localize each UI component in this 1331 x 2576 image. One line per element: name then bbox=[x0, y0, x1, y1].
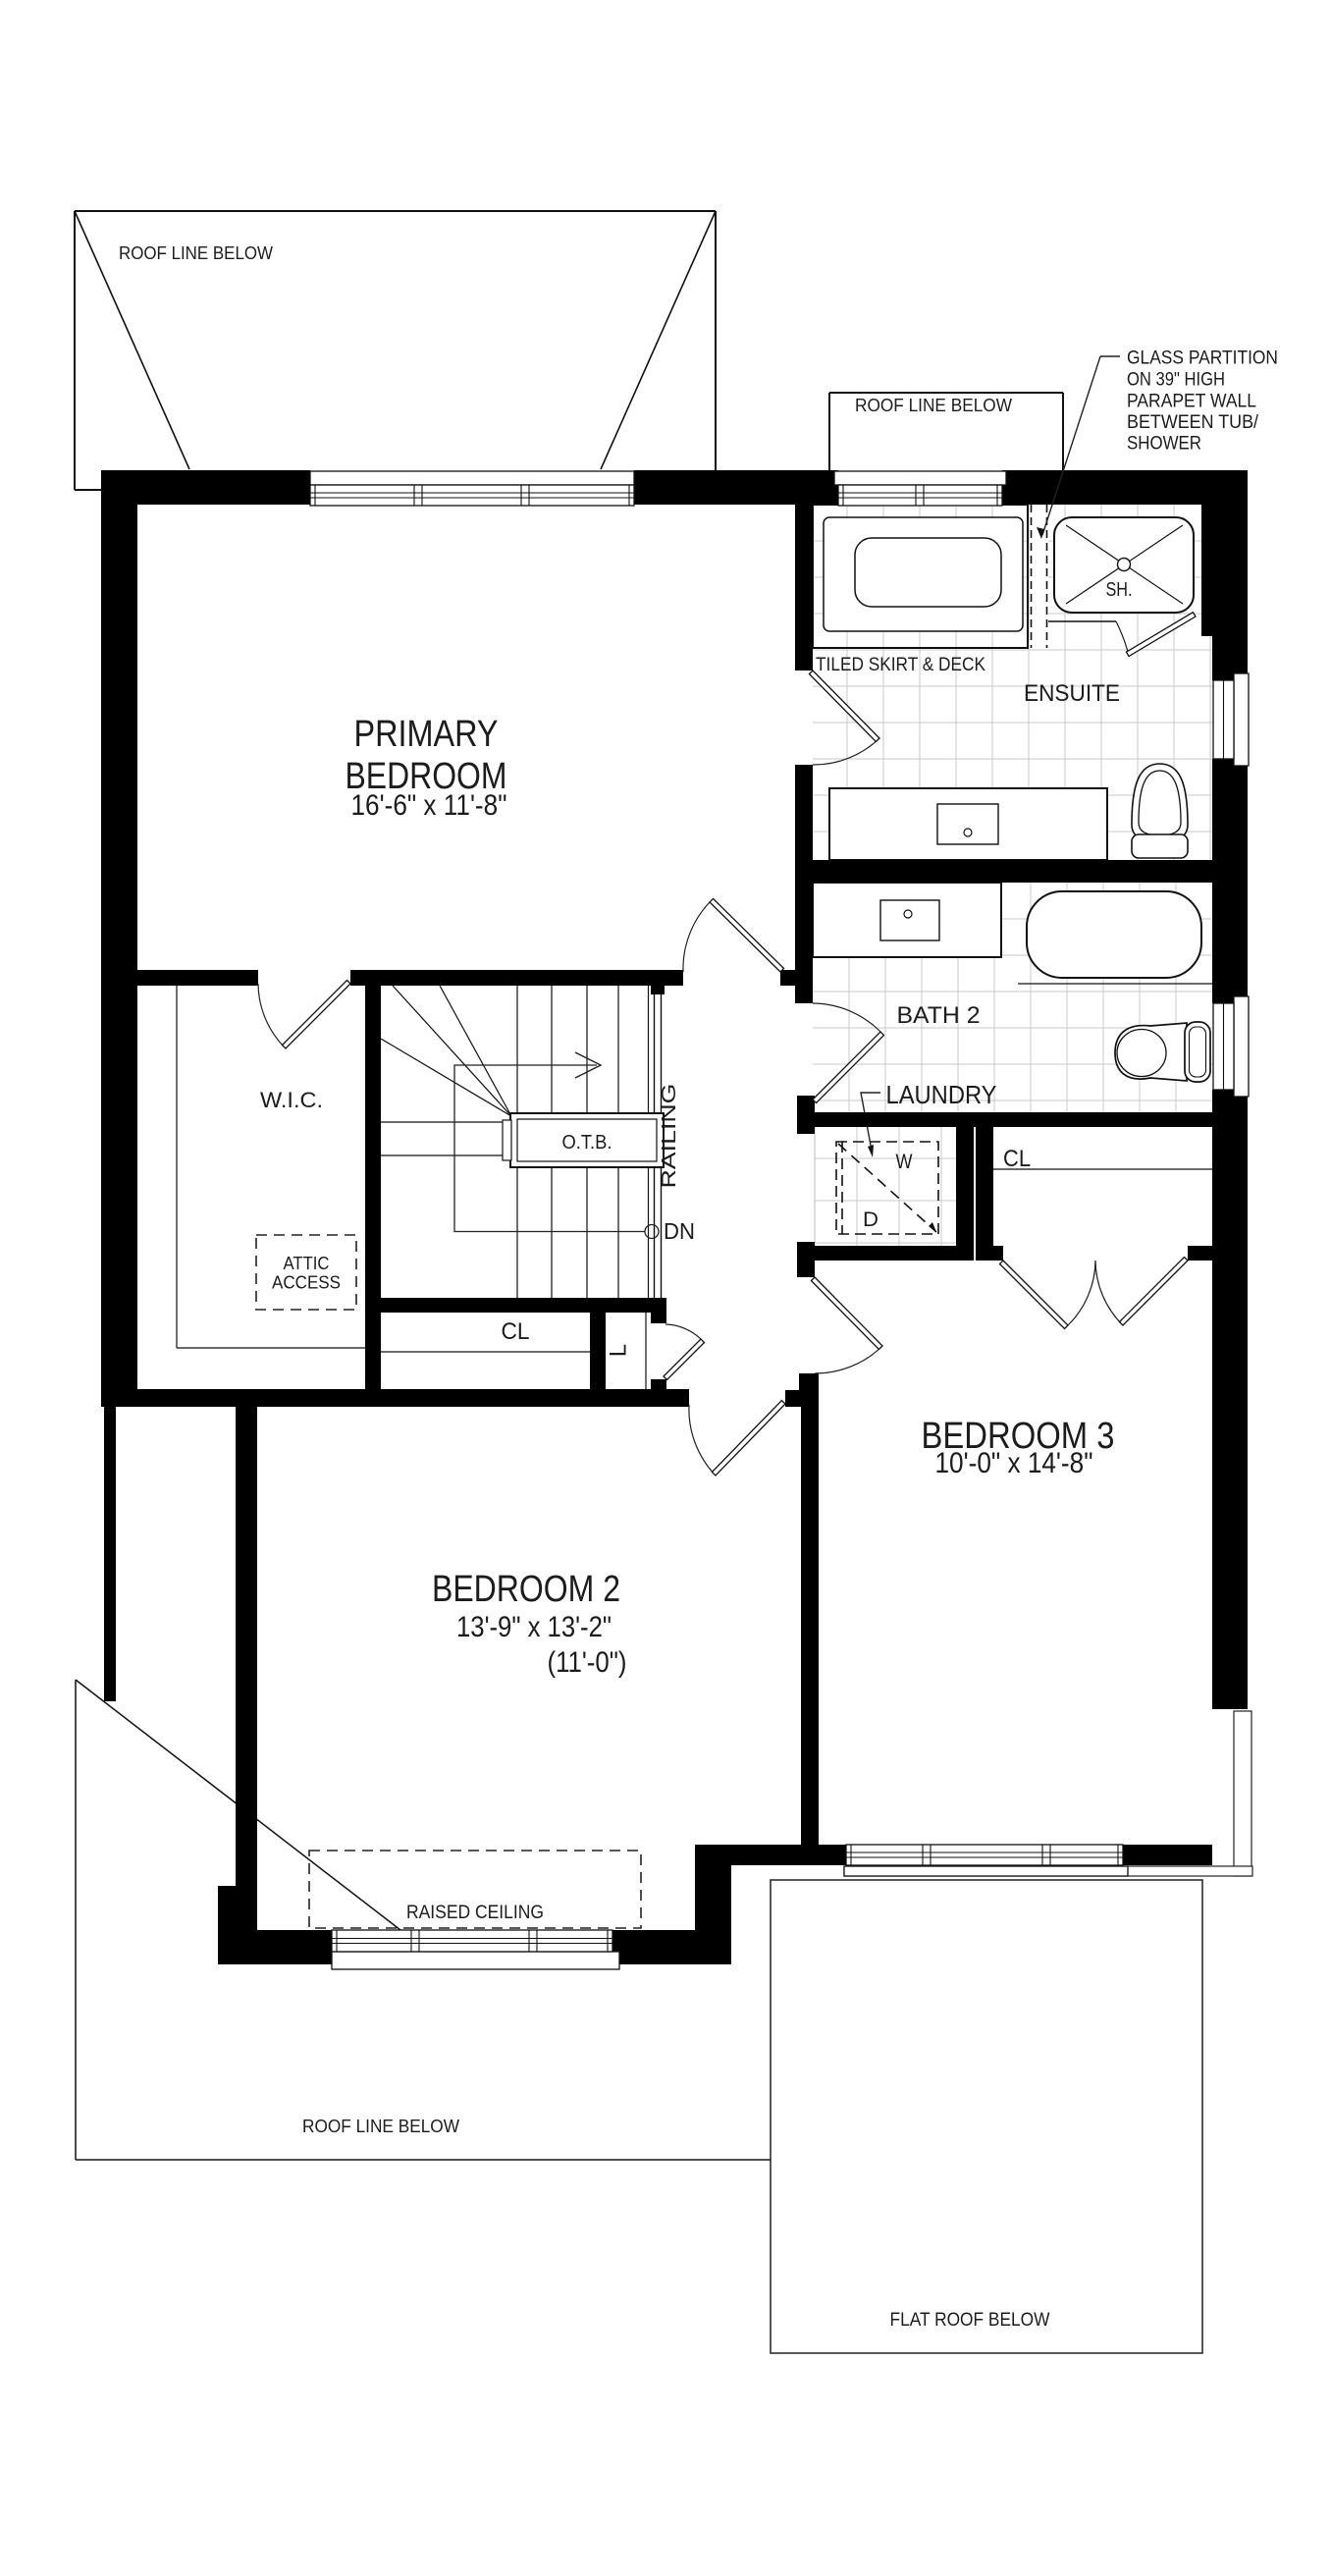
svg-text:10'-0" x 14'-8": 10'-0" x 14'-8" bbox=[935, 1447, 1093, 1479]
svg-text:ACCESS: ACCESS bbox=[272, 1272, 341, 1293]
svg-text:LAUNDRY: LAUNDRY bbox=[886, 1080, 997, 1109]
svg-text:W.I.C.: W.I.C. bbox=[260, 1088, 323, 1112]
svg-text:ROOF LINE BELOW: ROOF LINE BELOW bbox=[302, 2117, 459, 2136]
svg-text:BETWEEN TUB/: BETWEEN TUB/ bbox=[1127, 412, 1259, 433]
svg-text:SH.: SH. bbox=[1106, 579, 1133, 601]
svg-text:ON 39" HIGH: ON 39" HIGH bbox=[1127, 370, 1225, 391]
svg-text:PARAPET WALL: PARAPET WALL bbox=[1127, 392, 1256, 412]
svg-text:W: W bbox=[896, 1150, 914, 1173]
svg-text:ENSUITE: ENSUITE bbox=[1024, 680, 1120, 707]
svg-text:D: D bbox=[863, 1207, 878, 1231]
svg-text:BATH 2: BATH 2 bbox=[897, 1002, 981, 1029]
svg-text:(11'-0"): (11'-0") bbox=[548, 1646, 627, 1679]
svg-text:ATTIC: ATTIC bbox=[284, 1253, 330, 1273]
svg-text:CL: CL bbox=[502, 1318, 530, 1345]
svg-text:13'-9" x 13'-2": 13'-9" x 13'-2" bbox=[456, 1611, 612, 1643]
svg-text:O.T.B.: O.T.B. bbox=[562, 1132, 612, 1154]
svg-text:PRIMARY: PRIMARY bbox=[354, 714, 499, 755]
svg-text:16'-6" x 11'-8": 16'-6" x 11'-8" bbox=[351, 789, 507, 822]
svg-text:CL: CL bbox=[1003, 1146, 1031, 1172]
svg-text:FLAT ROOF BELOW: FLAT ROOF BELOW bbox=[890, 2310, 1050, 2331]
svg-text:BEDROOM 2: BEDROOM 2 bbox=[432, 1569, 620, 1610]
svg-text:RAISED CEILING: RAISED CEILING bbox=[406, 1903, 544, 1923]
svg-text:SHOWER: SHOWER bbox=[1127, 434, 1201, 455]
svg-text:L: L bbox=[606, 1344, 632, 1357]
svg-text:RAILING: RAILING bbox=[659, 1084, 680, 1189]
svg-text:ROOF LINE BELOW: ROOF LINE BELOW bbox=[119, 243, 273, 263]
svg-text:GLASS PARTITION: GLASS PARTITION bbox=[1127, 349, 1278, 369]
svg-text:TILED SKIRT & DECK: TILED SKIRT & DECK bbox=[816, 655, 985, 675]
svg-text:ROOF LINE BELOW: ROOF LINE BELOW bbox=[855, 396, 1012, 415]
svg-text:DN: DN bbox=[664, 1218, 695, 1244]
